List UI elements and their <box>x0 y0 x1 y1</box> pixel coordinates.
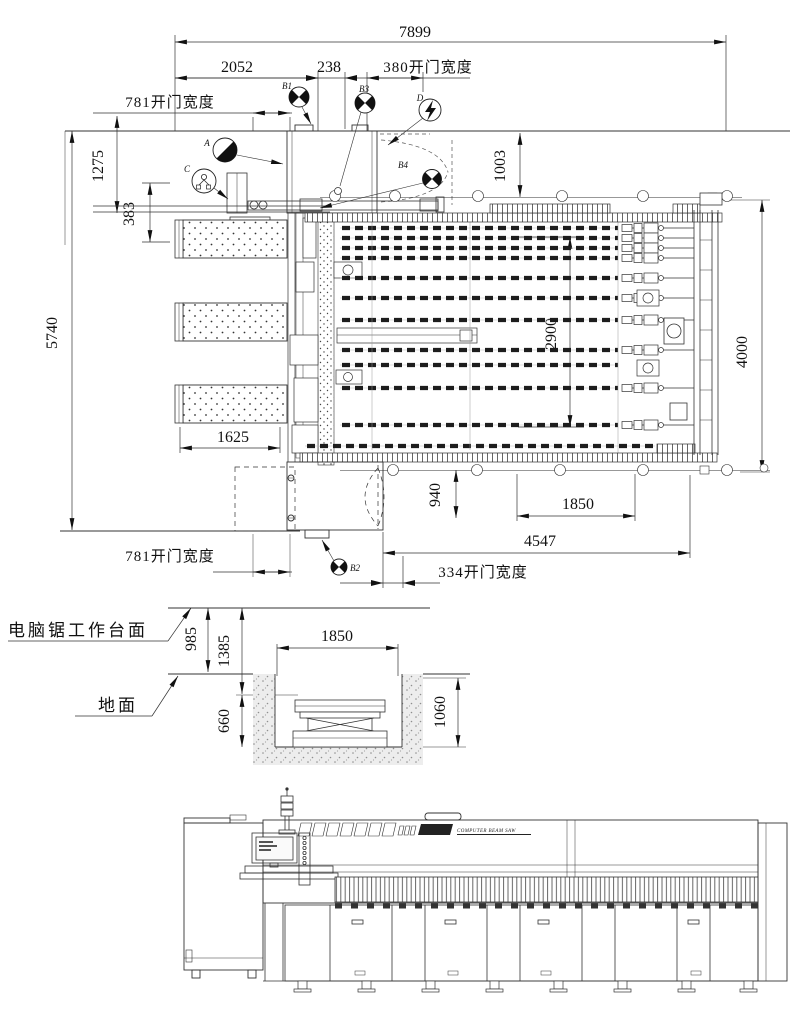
callout-b1 <box>289 87 311 124</box>
dim-4000 <box>725 200 770 472</box>
right-beam <box>664 193 722 455</box>
elev-left-cabinet <box>184 818 263 978</box>
callout-a <box>213 138 283 164</box>
dim-5740 <box>65 131 72 530</box>
callout-label-a: A <box>203 138 210 148</box>
dim-text-1060: 1060 <box>432 696 449 728</box>
dim-text-1850-plan: 1850 <box>562 496 594 513</box>
callout-label-b3: B3 <box>359 84 369 94</box>
lower-body <box>235 462 384 538</box>
worktable-label: 电脑锯工作台面 <box>8 621 148 640</box>
dim-text-985: 985 <box>183 627 200 651</box>
drawing-sheet: 7899 2052 238 380开门宽度 781开门宽度 1275 383 5… <box>0 0 793 1024</box>
callout-label-c: C <box>184 164 191 174</box>
saw-beam-column <box>288 213 477 465</box>
dim-text-2052: 2052 <box>221 59 253 76</box>
dim-door781-top <box>93 113 292 131</box>
ground-label: 地面 <box>98 696 138 715</box>
dim-text-1003: 1003 <box>492 150 509 182</box>
dim-text-660: 660 <box>216 709 233 733</box>
air-tables <box>175 220 287 423</box>
signal-tower <box>279 788 295 834</box>
dim-text-1625: 1625 <box>217 429 249 446</box>
dim-text-940: 940 <box>427 483 444 507</box>
dim-text-1850-pit: 1850 <box>321 628 353 645</box>
dim-text-door781-top: 781开门宽度 <box>125 94 215 111</box>
callout-b3 <box>335 93 376 195</box>
brand-subtitle: COMPUTER BEAM SAW <box>457 829 516 834</box>
elev-feet <box>263 981 758 992</box>
dim-text-1385: 1385 <box>216 635 233 667</box>
scissor-lift <box>293 700 387 747</box>
pit <box>253 674 423 765</box>
section-view: 电脑锯工作台面 地面 985 1385 1850 660 1060 <box>8 608 470 765</box>
slat-fence <box>335 877 758 906</box>
dim-text-door781-bottom: 781开门宽度 <box>125 548 215 565</box>
dim-text-2900: 2900 <box>543 318 560 350</box>
dim-text-door380: 380开门宽度 <box>383 59 473 76</box>
callout-label-b1: B1 <box>282 81 292 91</box>
callout-b2 <box>322 540 347 575</box>
callout-label-d: D <box>416 93 424 103</box>
plan-view: 7899 2052 238 380开门宽度 781开门宽度 1275 383 5… <box>44 24 790 588</box>
dim-door781-bottom <box>213 534 292 577</box>
callout-c <box>192 169 228 199</box>
elev-lower-cabinets <box>265 903 758 981</box>
dim-text-7899: 7899 <box>399 24 431 41</box>
callout-d <box>388 99 441 145</box>
callout-label-b2: B2 <box>350 563 360 573</box>
dim-text-1275: 1275 <box>90 150 107 182</box>
elev-right-panel <box>758 823 787 981</box>
callout-label-b4: B4 <box>398 160 408 170</box>
dim-text-5740: 5740 <box>44 317 61 349</box>
elevation-view: COMPUTER BEAM SAW <box>184 788 787 992</box>
dim-text-door334: 334开门宽度 <box>438 564 528 581</box>
control-console <box>240 833 338 885</box>
dim-1850-pit <box>277 644 398 676</box>
dim-overall-width <box>175 35 726 131</box>
dim-text-4547: 4547 <box>524 533 556 550</box>
dim-text-238: 238 <box>317 59 341 76</box>
dim-383 <box>142 183 170 242</box>
dim-text-4000: 4000 <box>734 336 751 368</box>
